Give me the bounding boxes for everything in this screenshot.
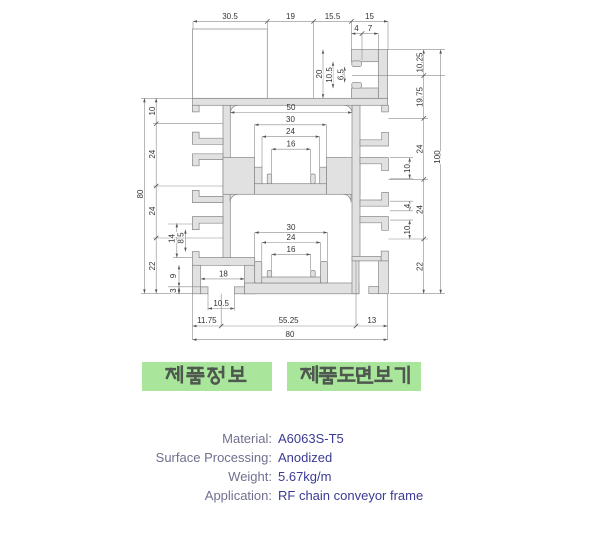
svg-text:3: 3 <box>169 288 178 293</box>
svg-text:4: 4 <box>403 203 412 208</box>
svg-text:24: 24 <box>148 206 157 215</box>
svg-text:24: 24 <box>416 144 425 153</box>
svg-text:30.5: 30.5 <box>222 12 238 21</box>
svg-text:6.5: 6.5 <box>337 68 346 80</box>
svg-text:10: 10 <box>403 164 412 173</box>
svg-text:19.75: 19.75 <box>416 86 425 107</box>
svg-text:24: 24 <box>287 233 296 242</box>
svg-text:14: 14 <box>168 234 177 243</box>
svg-text:8.5: 8.5 <box>176 232 185 244</box>
svg-text:22: 22 <box>416 262 425 271</box>
svg-text:80: 80 <box>286 330 295 339</box>
svg-text:15: 15 <box>365 12 374 21</box>
svg-text:100: 100 <box>433 150 442 164</box>
svg-text:13: 13 <box>367 316 376 325</box>
svg-text:10.5: 10.5 <box>325 67 334 83</box>
svg-text:15.5: 15.5 <box>325 12 341 21</box>
svg-text:80: 80 <box>136 189 145 198</box>
svg-text:20: 20 <box>315 69 324 78</box>
svg-text:11.75: 11.75 <box>197 316 217 325</box>
svg-text:24: 24 <box>416 205 425 214</box>
svg-text:9: 9 <box>169 273 178 278</box>
svg-text:19: 19 <box>286 12 295 21</box>
svg-text:22: 22 <box>148 261 157 270</box>
svg-text:30: 30 <box>287 223 296 232</box>
svg-text:50: 50 <box>287 103 296 112</box>
svg-text:10: 10 <box>403 225 412 234</box>
svg-text:10.5: 10.5 <box>213 299 229 308</box>
svg-text:16: 16 <box>287 140 296 149</box>
svg-text:7: 7 <box>368 24 373 33</box>
svg-text:4: 4 <box>354 24 359 33</box>
svg-text:10.25: 10.25 <box>416 52 425 73</box>
svg-text:16: 16 <box>287 245 296 254</box>
svg-text:24: 24 <box>286 127 295 136</box>
svg-text:24: 24 <box>148 149 157 158</box>
svg-text:30: 30 <box>286 115 295 124</box>
svg-text:18: 18 <box>219 269 228 278</box>
svg-text:10: 10 <box>148 106 157 115</box>
svg-text:55.25: 55.25 <box>279 316 300 325</box>
